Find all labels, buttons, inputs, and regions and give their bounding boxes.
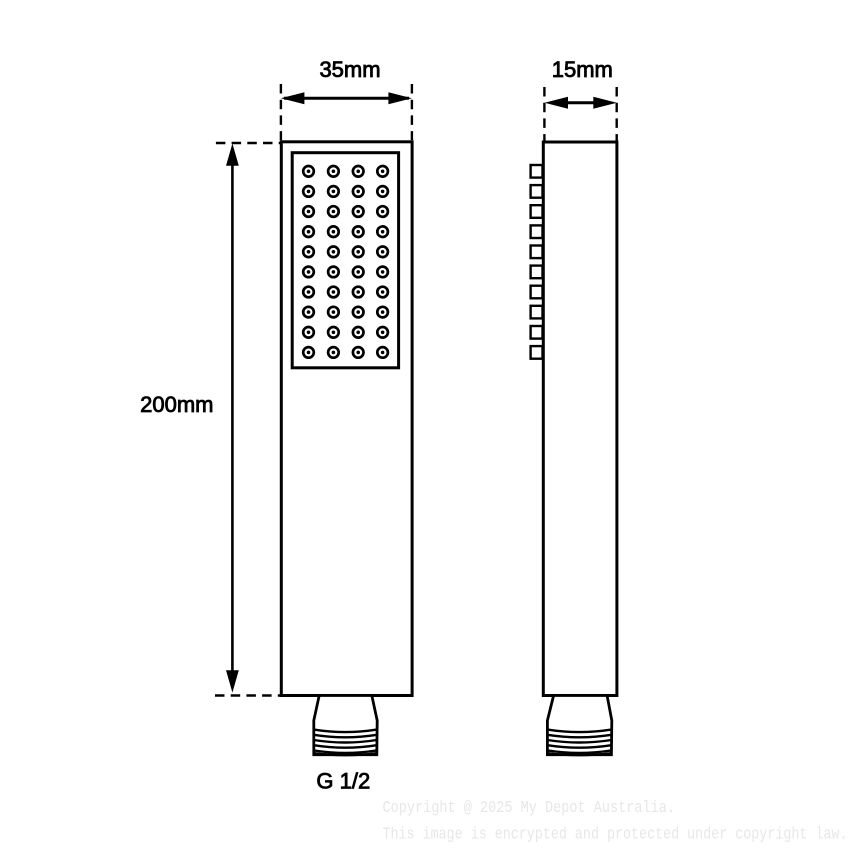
- svg-text:Copyright @ 2025 My Depot Aust: Copyright @ 2025 My Depot Australia.: [383, 799, 676, 818]
- svg-text:200mm: 200mm: [140, 392, 213, 417]
- svg-text:15mm: 15mm: [552, 57, 613, 82]
- svg-text:G 1/2: G 1/2: [316, 769, 370, 794]
- svg-text:This image is encrypted and pr: This image is encrypted and protected un…: [383, 825, 848, 844]
- svg-text:35mm: 35mm: [319, 57, 380, 82]
